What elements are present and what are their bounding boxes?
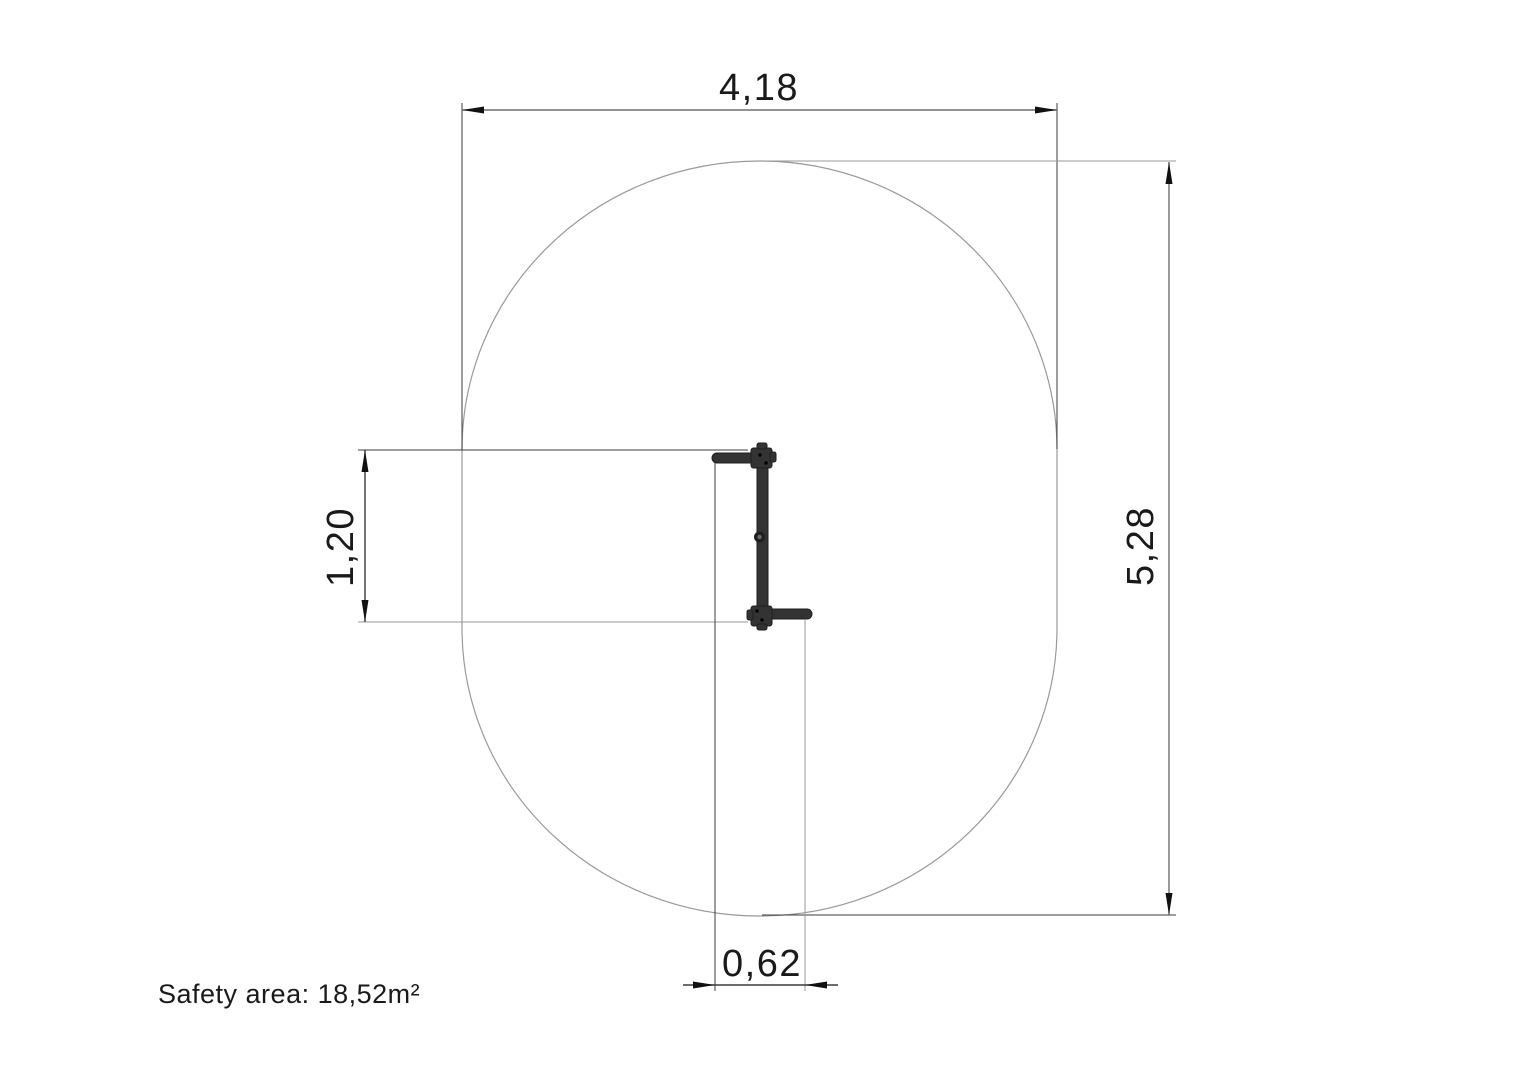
dimension-overall-height: 5,28 [762,161,1176,915]
screw-icon [760,618,763,621]
technical-drawing-canvas: 4,18 5,28 1,20 0,62 [0,0,1527,1080]
dimension-value-overall-width: 4,18 [719,67,799,109]
equipment-handle-top [712,453,756,463]
equipment-hub-top-lug [770,452,776,462]
screw-icon [764,461,767,464]
safety-area-note: Safety area: 18,52m² [158,979,420,1009]
arrowhead-left-icon [805,982,827,989]
arrowhead-up-icon [1166,162,1173,184]
equipment-hub-bottom-cap [757,624,767,630]
dimension-equipment-length: 1,20 [320,450,748,622]
equipment-hub-bottom-lug [747,610,753,620]
arrowhead-down-icon [1166,893,1173,915]
arrowhead-right-icon [693,982,715,989]
screw-icon [758,453,761,456]
arrowhead-up-icon [362,450,369,472]
dimension-value-overall-height: 5,28 [1120,506,1162,586]
dimension-value-equipment-length: 1,20 [320,507,362,587]
arrowhead-right-icon [1035,107,1057,114]
equipment-center-pivot-core [757,535,761,539]
dimension-value-equipment-width: 0,62 [722,943,802,985]
screw-icon [755,609,758,612]
equipment-hub-top [751,448,772,468]
arrowhead-left-icon [462,107,484,114]
arrowhead-down-icon [362,600,369,622]
dimension-overall-width: 4,18 [462,67,1057,450]
equipment-hub-bottom [751,606,772,626]
equipment-hub-top-cap [757,443,767,449]
equipment-handle-bottom [768,609,812,619]
equipment-top-view [712,443,812,630]
